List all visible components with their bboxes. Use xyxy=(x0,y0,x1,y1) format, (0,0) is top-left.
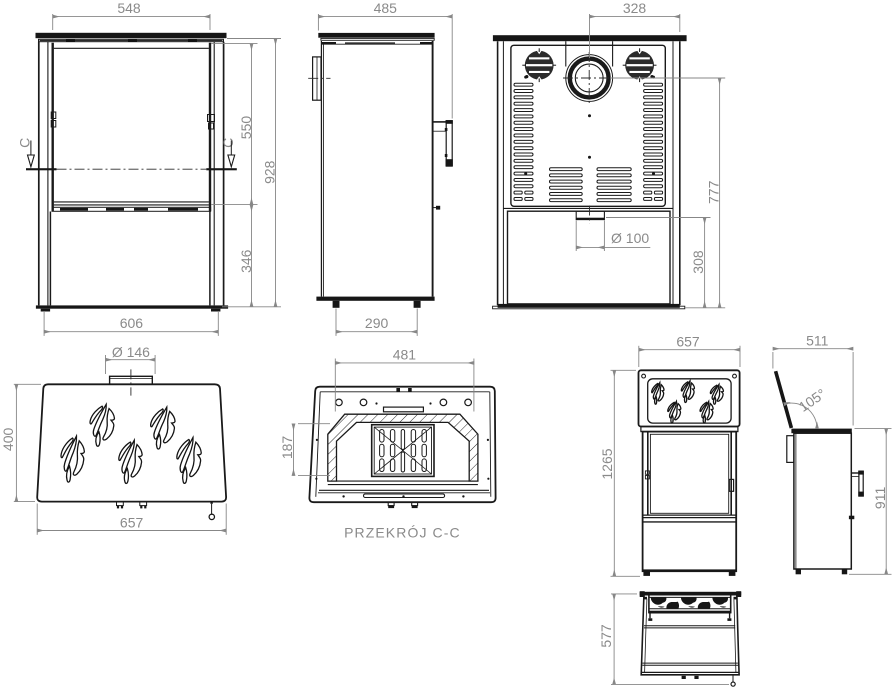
svg-text:481: 481 xyxy=(393,347,417,363)
svg-text:400: 400 xyxy=(0,428,16,452)
svg-text:928: 928 xyxy=(262,160,278,184)
svg-text:657: 657 xyxy=(120,515,144,531)
svg-text:1265: 1265 xyxy=(599,448,615,479)
svg-text:657: 657 xyxy=(676,333,700,349)
svg-text:C: C xyxy=(220,138,236,148)
svg-text:485: 485 xyxy=(374,0,398,16)
svg-text:346: 346 xyxy=(238,249,254,273)
svg-text:511: 511 xyxy=(806,332,829,348)
svg-text:606: 606 xyxy=(120,315,144,331)
svg-text:Ø 100: Ø 100 xyxy=(611,230,649,246)
svg-text:308: 308 xyxy=(690,250,706,274)
svg-text:777: 777 xyxy=(705,180,721,204)
svg-text:Ø 146: Ø 146 xyxy=(112,344,150,360)
svg-text:328: 328 xyxy=(623,0,647,16)
svg-text:187: 187 xyxy=(279,436,295,460)
svg-text:548: 548 xyxy=(117,0,141,16)
svg-text:911: 911 xyxy=(872,487,888,510)
svg-text:PRZEKRÓJ C-C: PRZEKRÓJ C-C xyxy=(344,524,461,540)
svg-text:290: 290 xyxy=(365,315,389,331)
svg-text:550: 550 xyxy=(238,116,254,140)
svg-text:577: 577 xyxy=(598,624,614,648)
svg-text:C: C xyxy=(16,138,32,148)
